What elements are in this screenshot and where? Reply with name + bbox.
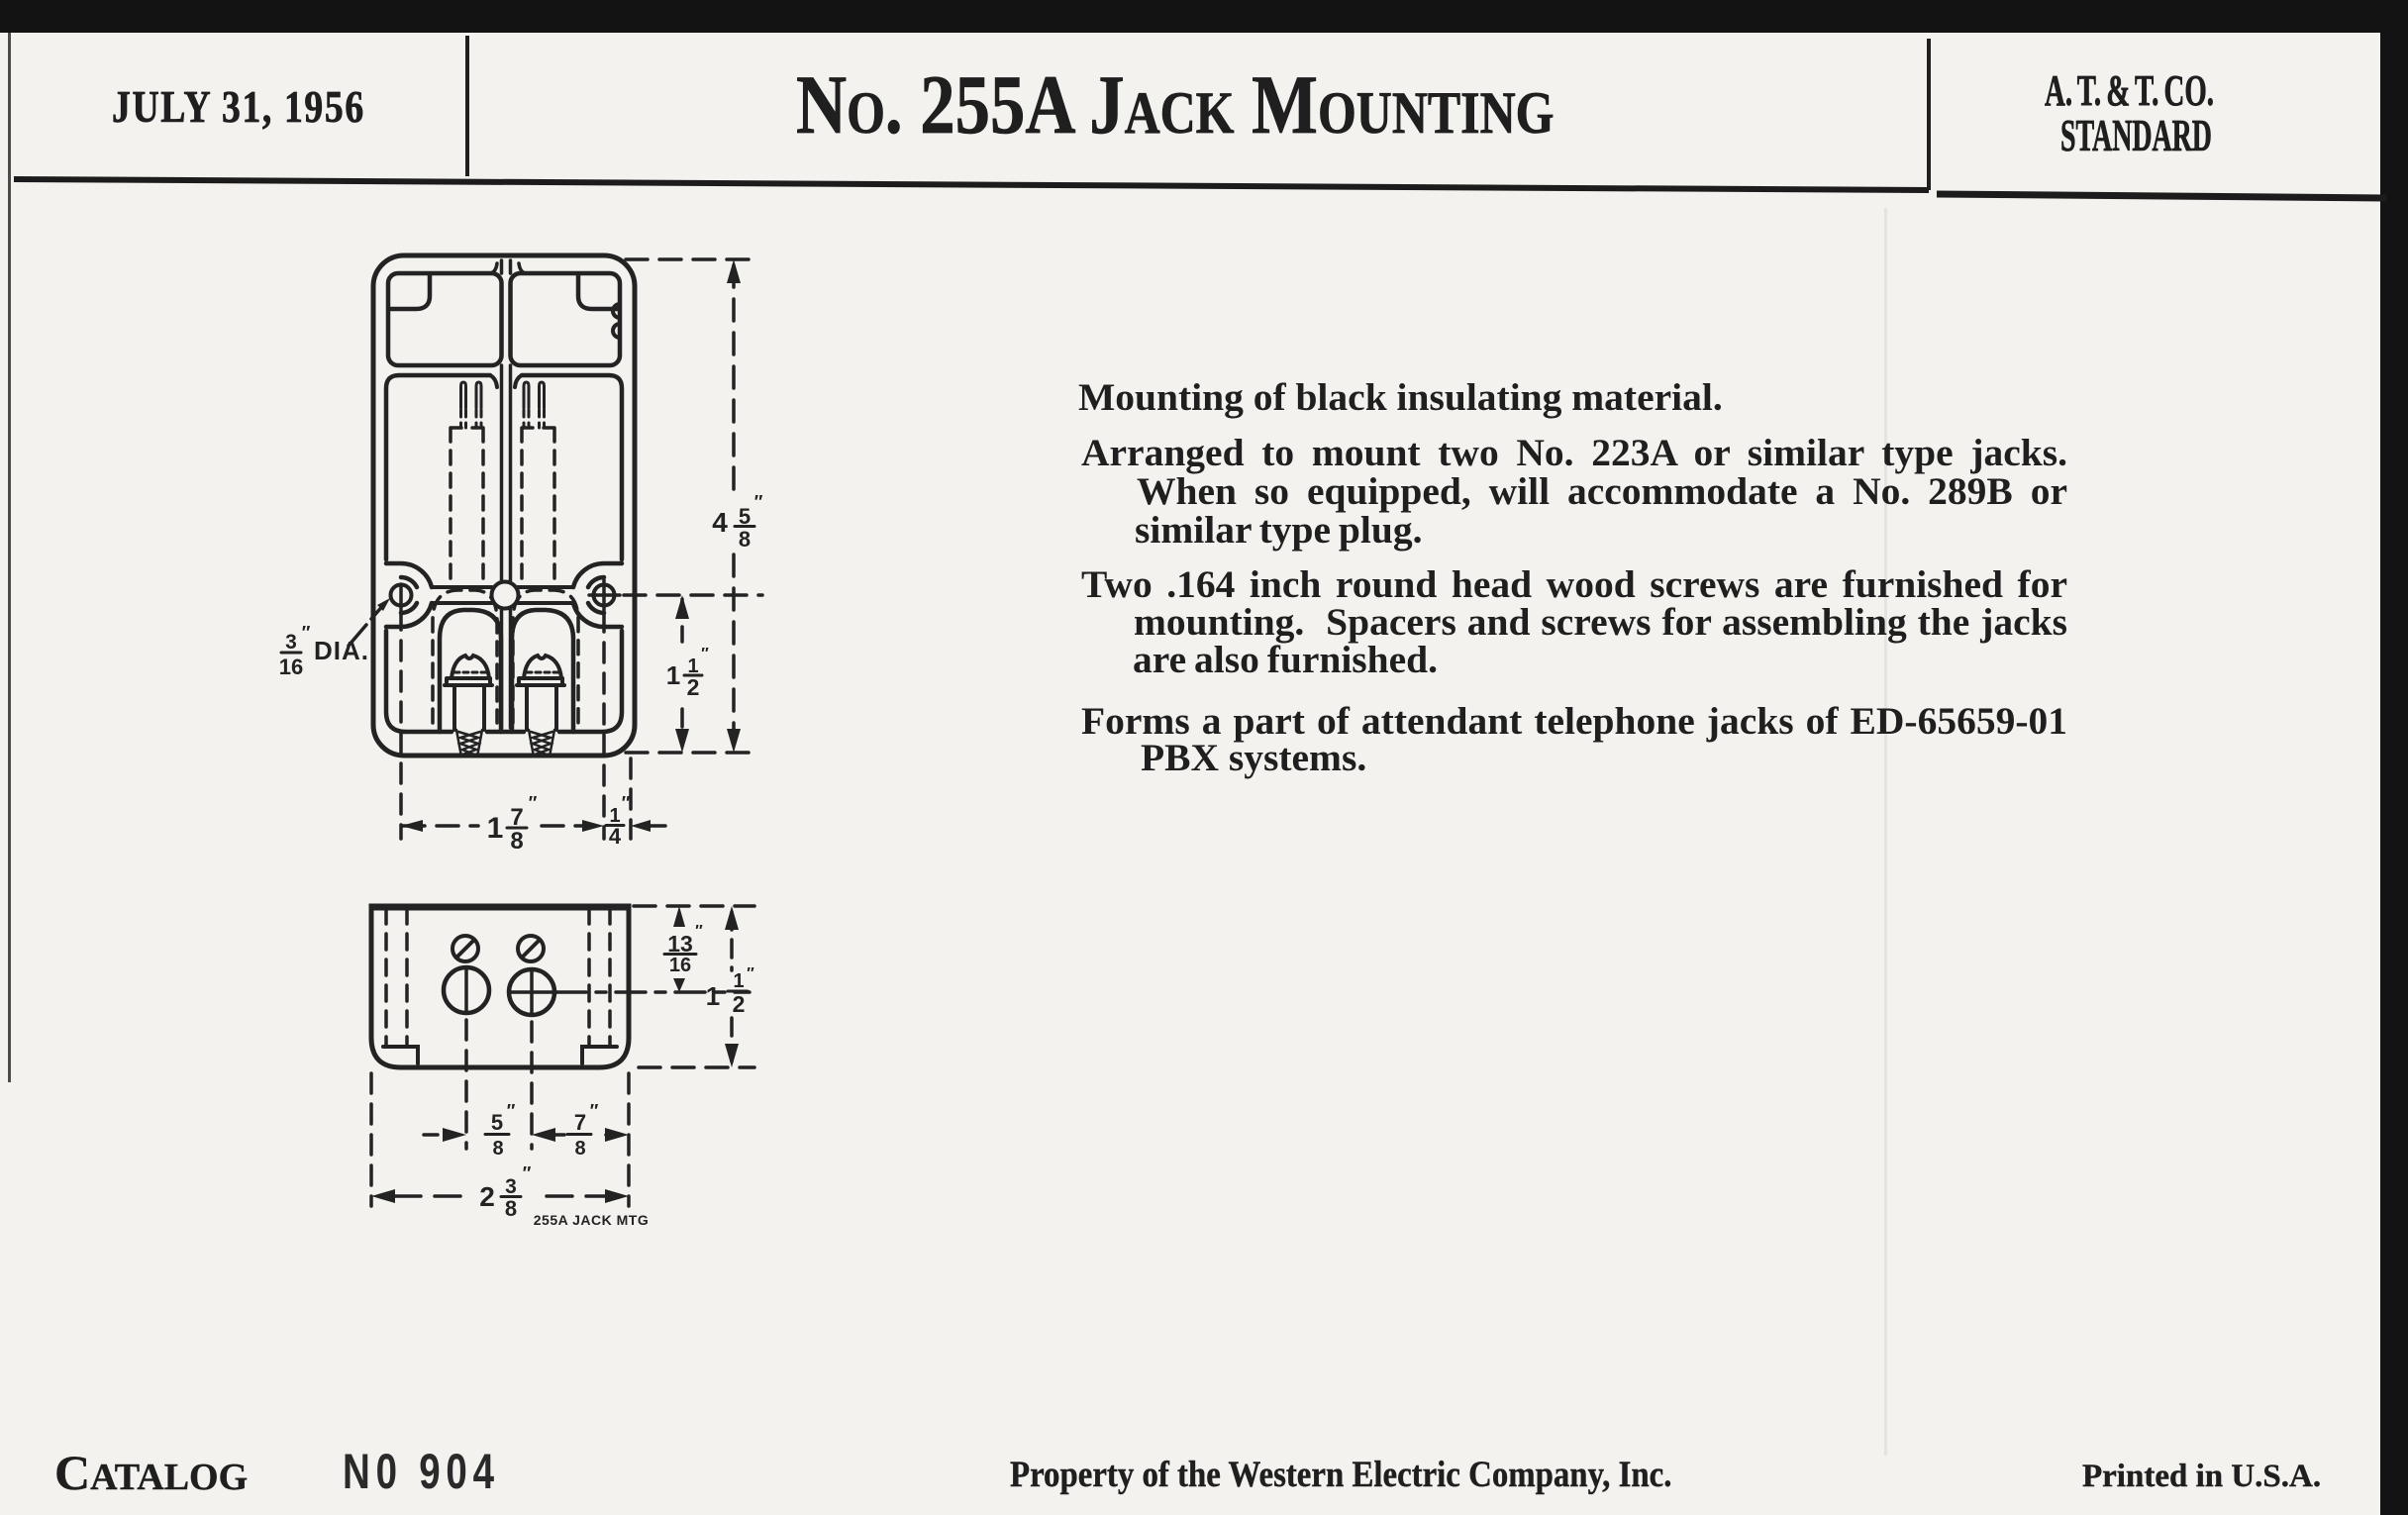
svg-text:1: 1	[706, 981, 720, 1011]
svg-text:8: 8	[505, 1196, 517, 1221]
svg-text:3: 3	[285, 631, 297, 654]
svg-text:″: ″	[701, 646, 709, 662]
svg-text:″: ″	[302, 623, 311, 643]
svg-text:″: ″	[507, 1101, 516, 1121]
svg-text:8: 8	[574, 1138, 585, 1160]
svg-text:3: 3	[505, 1175, 517, 1198]
svg-text:2: 2	[733, 991, 746, 1017]
svg-text:1: 1	[487, 812, 504, 845]
svg-text:8: 8	[739, 527, 751, 552]
svg-text:″: ″	[622, 793, 631, 813]
svg-text:7: 7	[574, 1110, 586, 1135]
svg-text:4: 4	[712, 507, 728, 538]
svg-text:1: 1	[666, 660, 680, 690]
svg-text:8: 8	[492, 1138, 503, 1160]
svg-text:″: ″	[747, 965, 754, 982]
svg-text:″: ″	[523, 1163, 532, 1183]
svg-text:5: 5	[491, 1110, 503, 1135]
svg-text:16: 16	[279, 655, 303, 679]
svg-text:DIA.: DIA.	[314, 636, 369, 665]
svg-text:255A JACK MTG: 255A JACK MTG	[534, 1212, 649, 1228]
svg-text:1: 1	[733, 970, 744, 992]
svg-text:4: 4	[609, 824, 622, 849]
svg-text:2: 2	[687, 674, 700, 700]
svg-text:8: 8	[510, 828, 523, 855]
svg-text:″: ″	[754, 492, 763, 512]
svg-text:16: 16	[669, 955, 691, 976]
svg-text:2: 2	[479, 1181, 495, 1212]
svg-text:″: ″	[590, 1101, 599, 1121]
svg-text:″: ″	[529, 793, 538, 813]
svg-text:″: ″	[695, 923, 703, 940]
